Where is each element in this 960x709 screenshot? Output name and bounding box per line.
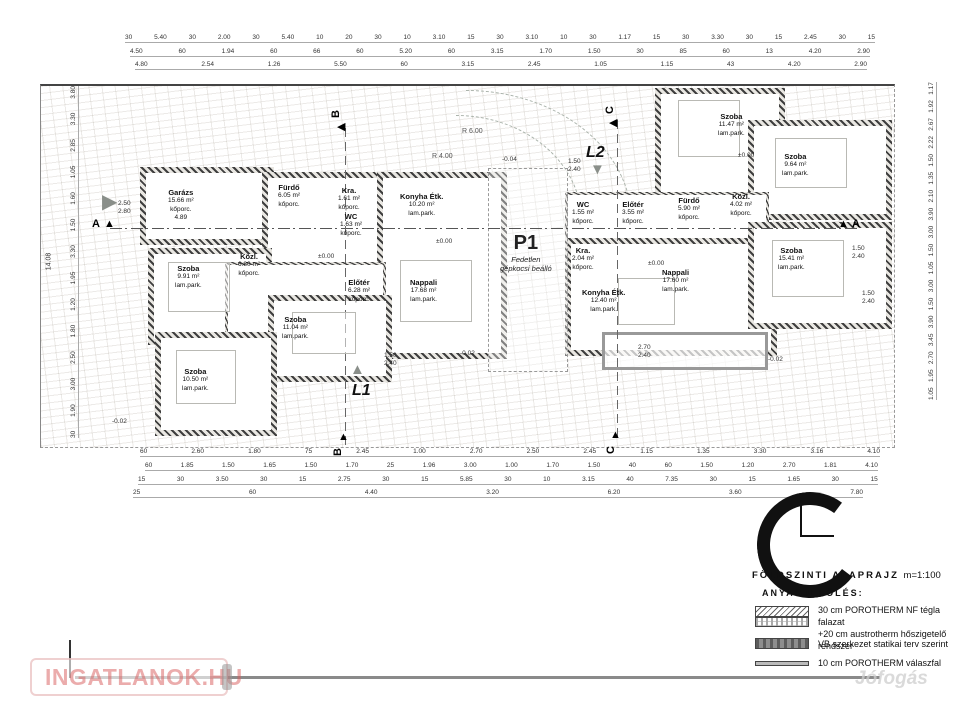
room-label-szoba2-right: Szoba 9.64 m² lam.park.	[782, 152, 809, 178]
entrance-label-l2: L2	[586, 144, 605, 162]
dim-value: 60	[140, 448, 147, 455]
dim-value: 1.15	[661, 61, 674, 68]
dim-pair: 2.702.40	[638, 344, 651, 360]
dim-value: 1.60	[70, 192, 77, 205]
dim-value: 13	[766, 48, 773, 55]
dim-value: 3.00	[70, 378, 77, 391]
dim-value: 3.45	[928, 333, 935, 346]
dim-value: 2.90	[857, 48, 870, 55]
dim-value: 1.50	[588, 462, 601, 469]
dim-value: 15	[748, 476, 755, 483]
dim-value: 30	[589, 34, 596, 41]
dim-value: 3.00	[928, 226, 935, 239]
dim-value: 30	[504, 476, 511, 483]
dim-value: 2.00	[218, 34, 231, 41]
dim-value: 10	[543, 476, 550, 483]
room-label-nappali-left: Nappali 17.68 m² lam.park.	[410, 278, 437, 304]
dim-col-right: 1.051.952.703.453.901.503.001.051.503.00…	[928, 82, 937, 400]
dim-value: 30	[260, 476, 267, 483]
dim-value: 3.30	[70, 245, 77, 258]
dim-value: 1.05	[928, 387, 935, 400]
legend-swatch-vb	[755, 638, 809, 649]
dim-value: 1.70	[346, 462, 359, 469]
radius-label-r6: R 6.00	[462, 128, 483, 135]
dim-value: 30	[710, 476, 717, 483]
dim-value: 30	[382, 476, 389, 483]
dim-value: 1.95	[70, 272, 77, 285]
dim-value: 30	[189, 34, 196, 41]
dim-value: 2.70	[783, 462, 796, 469]
dim-value: 1.20	[742, 462, 755, 469]
dim-value: 2.70	[928, 351, 935, 364]
dim-left-total: 14.08	[45, 253, 52, 271]
room-label-szoba1-left: Szoba 9.91 m² lam.park.	[175, 264, 202, 290]
dim-value: 1.65	[787, 476, 800, 483]
dim-value: 1.50	[588, 48, 601, 55]
wall-garage	[140, 167, 274, 245]
dim-value: 2.50	[70, 351, 77, 364]
room-label-szoba3-right: Szoba 15.41 m² lam.park.	[778, 246, 805, 272]
dim-value: 2.67	[928, 118, 935, 131]
level-minus-002: -0.02	[460, 350, 475, 357]
dim-pair: 2.502.80	[118, 200, 131, 216]
dim-value: 1.00	[505, 462, 518, 469]
dim-value: 30	[832, 476, 839, 483]
dim-value: 1.15	[640, 448, 653, 455]
dim-value: 3.30	[70, 113, 77, 126]
dim-value: 15	[299, 476, 306, 483]
dim-value: 4.10	[867, 448, 880, 455]
section-arrow-icon: ▲	[838, 219, 849, 230]
dim-row-bottom-3: 15303.5030152.7530155.8530103.15407.3530…	[138, 476, 878, 485]
dim-value: 3.90	[928, 208, 935, 221]
dim-value: 2.45	[528, 61, 541, 68]
dim-value: 4.80	[135, 61, 148, 68]
dim-value: 2.45	[583, 448, 596, 455]
dim-value: 3.15	[582, 476, 595, 483]
watermark-jofogas: Jófogás	[855, 668, 928, 690]
dim-value: 3.15	[461, 61, 474, 68]
dim-value: 1.65	[263, 462, 276, 469]
legend-swatch-brick	[755, 606, 809, 617]
dim-row-top-3: 4.802.541.265.50603.152.451.051.15434.20…	[135, 61, 867, 70]
entrance-label-l1: L1	[352, 382, 371, 400]
dim-value: 10	[316, 34, 323, 41]
level-zero: ±0.00	[738, 152, 754, 159]
dim-pair: 1.502.40	[862, 290, 875, 306]
dim-value: 30	[125, 34, 132, 41]
dim-value: 15	[775, 34, 782, 41]
section-arrow-icon: ◀	[609, 118, 617, 129]
watermark-tab	[222, 664, 232, 690]
dim-value: 2.45	[356, 448, 369, 455]
dim-col-left: 301.903.002.501.801.201.953.301.501.601.…	[70, 86, 79, 438]
dim-row-bottom-4: 25604.403.206.203.607.80	[133, 489, 863, 498]
dim-value: 43	[727, 61, 734, 68]
dim-value: 30	[636, 48, 643, 55]
dim-value: 30	[177, 476, 184, 483]
terrace-right	[602, 332, 768, 370]
room-label-wc-left: WC 1.63 m² kőporc.	[340, 212, 362, 238]
dim-value: 60	[145, 462, 152, 469]
section-arrow-icon: ◀	[337, 122, 345, 133]
dim-value: 7.80	[850, 489, 863, 496]
dim-row-top-2: 4.50601.946066605.20603.151.701.50308560…	[130, 48, 870, 57]
dim-value: 1.70	[539, 48, 552, 55]
dim-value: 60	[270, 48, 277, 55]
room-label-kra-right: Kra. 2.04 m² kőporc.	[572, 246, 594, 272]
entrance-arrow-icon: ▲	[350, 362, 365, 377]
plan-title: FÖLDSZINTI ALAPRAJZ m=1:100	[752, 570, 941, 581]
dim-value: 25	[133, 489, 140, 496]
room-label-eloter-right: Előtér 3.55 m² kőporc.	[622, 200, 644, 226]
dim-value: 25	[387, 462, 394, 469]
room-label-eloter-left: Előtér 6.28 m² kőporc.	[348, 278, 370, 304]
dim-value: 1.95	[928, 369, 935, 382]
dim-value: 3.10	[526, 34, 539, 41]
dim-value: 15	[653, 34, 660, 41]
room-label-konyha-left: Konyha Étk. 10.20 m² lam.park.	[400, 192, 443, 218]
dim-value: 3.30	[711, 34, 724, 41]
dim-row-bottom-2: 601.851.501.651.501.70251.963.001.001.70…	[145, 462, 878, 471]
legend-item-vb: VB szerkezet statikai terv szerint	[818, 638, 948, 650]
room-label-garazs: Garázs 15.66 m² kőporc. 4.89	[168, 188, 194, 222]
dim-value: 5.20	[399, 48, 412, 55]
dim-value: 1.05	[928, 262, 935, 275]
dim-value: 1.50	[700, 462, 713, 469]
dim-value: 5.50	[334, 61, 347, 68]
section-arrow-icon: ▲	[338, 432, 349, 443]
dim-value: 15	[868, 34, 875, 41]
dim-value: 85	[679, 48, 686, 55]
dim-value: 1.35	[928, 172, 935, 185]
dim-value: 60	[723, 48, 730, 55]
dim-value: 1.80	[248, 448, 261, 455]
dim-pair: 1.502.40	[852, 245, 865, 261]
dim-value: 1.00	[413, 448, 426, 455]
dim-value: 20	[345, 34, 352, 41]
dim-value: 3.16	[811, 448, 824, 455]
dim-value: 75	[305, 448, 312, 455]
dim-value: 1.05	[70, 166, 77, 179]
north-symbol-tick	[800, 505, 834, 537]
level-zero: ±0.00	[436, 238, 452, 245]
dim-value: 30	[839, 34, 846, 41]
driveway-arrow-icon: ▶	[102, 192, 117, 212]
dim-row-top-1: 305.40302.00305.40102030103.1015303.1010…	[125, 34, 875, 43]
dim-value: 1.17	[928, 82, 935, 95]
dim-pair: 1.502.40	[568, 158, 581, 174]
dim-value: 1.26	[268, 61, 281, 68]
dim-value: 3.60	[729, 489, 742, 496]
entrance-arrow-icon: ▼	[590, 162, 605, 177]
dim-value: 1.70	[546, 462, 559, 469]
room-label-kra-left: Kra. 1.61 m² kőporc.	[338, 186, 360, 212]
dim-value: 10	[404, 34, 411, 41]
legend-swatch-insulation	[755, 617, 809, 627]
legend-swatch-partition	[755, 661, 809, 666]
dim-value: 30	[252, 34, 259, 41]
room-label-szoba3-left: Szoba 10.50 m² lam.park.	[182, 367, 209, 393]
dim-value: 1.05	[594, 61, 607, 68]
dim-value: 1.20	[70, 298, 77, 311]
dim-value: 1.50	[928, 298, 935, 311]
room-label-szoba2-left: Szoba 11.04 m² lam.park.	[282, 315, 309, 341]
dim-value: 2.45	[804, 34, 817, 41]
dim-value: 1.96	[423, 462, 436, 469]
section-line-b	[345, 128, 346, 446]
section-marker-b-top: B	[330, 110, 342, 118]
dim-value: 1.50	[304, 462, 317, 469]
legend-heading: ANYAGJELÖLÉS:	[762, 588, 864, 598]
dim-value: 1.81	[824, 462, 837, 469]
section-marker-a-left: A	[92, 218, 100, 230]
dim-value: 5.40	[282, 34, 295, 41]
north-symbol	[750, 485, 870, 605]
dim-value: 15	[138, 476, 145, 483]
room-label-konyha-right: Konyha Étk. 12.40 m² lam.park.	[582, 288, 625, 314]
dim-value: 40	[626, 476, 633, 483]
dim-value: 60	[356, 48, 363, 55]
dim-value: 2.10	[928, 190, 935, 203]
dim-value: 60	[665, 462, 672, 469]
dim-value: 1.17	[618, 34, 631, 41]
carport-label: P1 Fedetlen gépkocsi beálló	[500, 232, 552, 273]
section-line-a	[110, 228, 858, 229]
room-label-wc-right: WC 1.55 m² kőporc.	[572, 200, 594, 226]
level-zero: ±0.00	[648, 260, 664, 267]
dim-value: 15	[421, 476, 428, 483]
dim-value: 3.00	[464, 462, 477, 469]
dim-value: 3.10	[433, 34, 446, 41]
dim-value: 3.30	[754, 448, 767, 455]
dim-value: 1.35	[697, 448, 710, 455]
room-label-furdo-left: Fürdő 6.05 m² kőporc.	[278, 183, 300, 209]
section-marker-c-top: C	[604, 106, 616, 114]
level-zero: ±0.00	[318, 253, 334, 260]
section-arrow-icon: ▲	[104, 219, 115, 230]
dim-value: 60	[249, 489, 256, 496]
room-label-kozl-left: Közl. 6.80 m² kőporc.	[238, 252, 260, 278]
dim-value: 3.20	[486, 489, 499, 496]
dim-value: 60	[179, 48, 186, 55]
dim-value: 10	[560, 34, 567, 41]
dim-value: 2.50	[527, 448, 540, 455]
dim-value: 1.50	[928, 154, 935, 167]
dim-value: 60	[448, 48, 455, 55]
dim-value: 30	[746, 34, 753, 41]
dim-value: 2.85	[70, 139, 77, 152]
dim-value: 1.85	[181, 462, 194, 469]
dim-value: 2.54	[201, 61, 214, 68]
level-minus-002: -0.02	[112, 418, 127, 425]
dim-value: 5.85	[460, 476, 473, 483]
section-marker-a-right: A	[852, 218, 860, 230]
dim-value: 2.90	[854, 61, 867, 68]
dim-value: 5.40	[154, 34, 167, 41]
dim-value: 4.50	[130, 48, 143, 55]
dim-value: 30	[374, 34, 381, 41]
dim-value: 2.70	[470, 448, 483, 455]
section-marker-c-bottom: C	[605, 446, 617, 454]
level-minus-002: -0.02	[768, 356, 783, 363]
dim-value: 1.50	[928, 244, 935, 257]
dim-value: 30	[496, 34, 503, 41]
dim-value: 2.22	[928, 136, 935, 149]
dim-value: 1.50	[222, 462, 235, 469]
dim-pair: 1.502.40	[384, 352, 397, 368]
watermark-brand: INGATLANOK.HU	[45, 664, 243, 691]
dim-value: 4.20	[809, 48, 822, 55]
dim-value: 15	[467, 34, 474, 41]
dim-value: 30	[682, 34, 689, 41]
plan-scale: m=1:100	[904, 570, 941, 581]
dim-value: 60	[401, 61, 408, 68]
dim-value: 6.20	[608, 489, 621, 496]
dim-value: 3.00	[928, 280, 935, 293]
dim-value: 30	[70, 431, 77, 438]
dim-value: 15	[871, 476, 878, 483]
room-label-nappali-right: Nappali 17.60 m² lam.park.	[662, 268, 689, 294]
dim-value: 3.90	[928, 316, 935, 329]
dim-value: 1.90	[70, 404, 77, 417]
radius-label-r4: R 4.00	[432, 153, 453, 160]
section-marker-b-bottom: B	[332, 448, 344, 456]
dim-value: 7.35	[665, 476, 678, 483]
dim-value: 4.40	[365, 489, 378, 496]
dim-value: 4.10	[865, 462, 878, 469]
room-label-kozl-right: Közl. 4.02 m² kőporc.	[730, 192, 752, 218]
dim-value: 2.75	[338, 476, 351, 483]
level-minus-004: -0.04	[502, 156, 517, 163]
dim-value: 1.92	[928, 100, 935, 113]
dim-value: 4.20	[788, 61, 801, 68]
dim-value: 2.60	[191, 448, 204, 455]
watermark-ingatlanok: INGATLANOK.HU	[30, 658, 228, 696]
dim-value: 1.94	[222, 48, 235, 55]
dim-value: 3.50	[216, 476, 229, 483]
dim-value: 66	[313, 48, 320, 55]
room-label-furdo-right: Fürdő 5.90 m² kőporc.	[678, 196, 700, 222]
dim-value: 40	[629, 462, 636, 469]
dim-value: 1.50	[70, 219, 77, 232]
dim-value: 3.15	[491, 48, 504, 55]
dim-value: 1.80	[70, 325, 77, 338]
dim-value: 3.80	[70, 86, 77, 99]
section-arrow-icon: ▲	[610, 430, 621, 441]
room-label-szoba1-right: Szoba 11.47 m² lam.park.	[718, 112, 745, 138]
dim-row-bottom-1: 602.601.80752.451.002.702.502.451.151.35…	[140, 448, 880, 457]
